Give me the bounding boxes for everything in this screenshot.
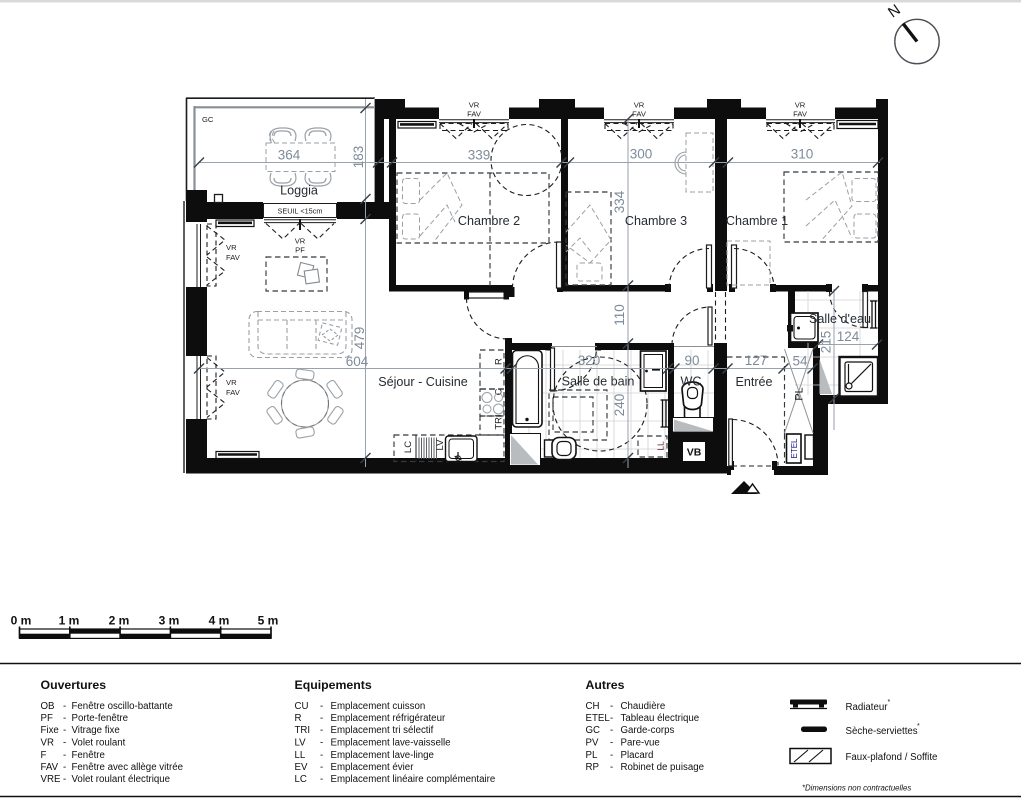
svg-text:-: - — [610, 750, 613, 761]
svg-text:-: - — [63, 725, 66, 736]
svg-text:479: 479 — [352, 327, 367, 350]
svg-text:Volet roulant électrique: Volet roulant électrique — [72, 774, 171, 785]
svg-text:R: R — [494, 358, 505, 365]
svg-text:300: 300 — [630, 147, 653, 162]
svg-text:R: R — [295, 713, 302, 724]
svg-text:FAV: FAV — [226, 388, 241, 397]
svg-text:VR: VR — [634, 101, 645, 110]
svg-text:CH: CH — [586, 701, 600, 712]
svg-text:OB: OB — [41, 701, 55, 712]
svg-text:Tableau électrique: Tableau électrique — [621, 713, 700, 724]
svg-text:Loggia: Loggia — [280, 184, 318, 198]
svg-text:ETEL: ETEL — [790, 438, 799, 459]
svg-text:-: - — [320, 713, 323, 724]
svg-text:Emplacement tri sélectif: Emplacement tri sélectif — [331, 725, 434, 736]
svg-text:Fenêtre oscillo-battante: Fenêtre oscillo-battante — [72, 701, 173, 712]
svg-text:Placard: Placard — [621, 750, 654, 761]
svg-text:Equipements: Equipements — [295, 678, 372, 692]
svg-text:-: - — [63, 762, 66, 773]
svg-text:VR: VR — [226, 378, 237, 387]
svg-text:LC: LC — [403, 441, 414, 453]
svg-text:0 m: 0 m — [11, 614, 32, 628]
svg-text:-: - — [610, 701, 613, 712]
svg-text:VRE: VRE — [41, 774, 61, 785]
svg-text:PL: PL — [586, 750, 598, 761]
svg-text:-: - — [610, 713, 613, 724]
svg-text:Emplacement lave-vaisselle: Emplacement lave-vaisselle — [331, 738, 451, 749]
svg-text:Faux-plafond / Soffite: Faux-plafond / Soffite — [846, 752, 938, 763]
svg-text:CU: CU — [295, 701, 309, 712]
svg-text:PV: PV — [586, 738, 599, 749]
svg-text:110: 110 — [612, 304, 627, 326]
svg-text:240: 240 — [612, 394, 627, 417]
svg-text:PF: PF — [41, 713, 53, 724]
svg-text:-: - — [320, 774, 323, 785]
svg-text:-: - — [63, 774, 66, 785]
svg-text:FAV: FAV — [41, 762, 59, 773]
svg-text:3 m: 3 m — [159, 614, 180, 628]
svg-text:VR: VR — [41, 738, 54, 749]
svg-text:Radiateur: Radiateur — [846, 702, 889, 713]
svg-text:VB: VB — [687, 447, 702, 459]
svg-text:Entrée: Entrée — [735, 375, 772, 389]
svg-text:VR: VR — [226, 243, 237, 252]
svg-text:604: 604 — [346, 354, 369, 369]
svg-text:LL: LL — [295, 750, 306, 761]
svg-text:Salle d'eau: Salle d'eau — [809, 312, 871, 326]
svg-text:-: - — [63, 750, 66, 761]
svg-text:F: F — [41, 750, 47, 761]
svg-text:LL: LL — [656, 441, 666, 451]
svg-text:FAV: FAV — [793, 110, 808, 119]
svg-text:VR: VR — [469, 101, 480, 110]
svg-text:Fenêtre avec allège vitrée: Fenêtre avec allège vitrée — [72, 762, 183, 773]
svg-text:Ouvertures: Ouvertures — [41, 678, 107, 692]
svg-text:-: - — [610, 725, 613, 736]
svg-text:VR: VR — [295, 237, 306, 246]
svg-text:310: 310 — [791, 147, 814, 162]
svg-text:364: 364 — [278, 148, 301, 163]
svg-text:90: 90 — [684, 353, 699, 368]
svg-text:Vitrage fixe: Vitrage fixe — [72, 725, 120, 736]
svg-text:VR: VR — [795, 101, 806, 110]
svg-text:Emplacement lave-linge: Emplacement lave-linge — [331, 750, 434, 761]
svg-text:Emplacement réfrigérateur: Emplacement réfrigérateur — [331, 713, 446, 724]
svg-text:*Dimensions non contractuelles: *Dimensions non contractuelles — [802, 784, 911, 793]
svg-text:RP: RP — [586, 762, 599, 773]
svg-text:124: 124 — [837, 329, 860, 344]
svg-text:Sèche-serviettes: Sèche-serviettes — [846, 726, 918, 737]
svg-text:Porte-fenêtre: Porte-fenêtre — [72, 713, 129, 724]
svg-text:PF: PF — [295, 246, 305, 255]
svg-text:-: - — [610, 738, 613, 749]
svg-text:EV: EV — [295, 762, 308, 773]
svg-text:Salle de bain: Salle de bain — [562, 375, 635, 389]
svg-text:C: C — [494, 388, 505, 395]
svg-text:*: * — [888, 699, 891, 706]
svg-text:-: - — [63, 713, 66, 724]
svg-text:-: - — [320, 725, 323, 736]
svg-text:Autres: Autres — [586, 678, 625, 692]
svg-text:ETEL: ETEL — [586, 713, 611, 724]
svg-text:Emplacement évier: Emplacement évier — [331, 762, 415, 773]
svg-text:Fixe: Fixe — [41, 725, 59, 736]
svg-text:183: 183 — [351, 146, 366, 169]
svg-text:-: - — [320, 762, 323, 773]
svg-text:*: * — [917, 723, 920, 730]
svg-text:54: 54 — [792, 354, 808, 369]
svg-text:PL: PL — [794, 387, 806, 400]
svg-text:215: 215 — [819, 331, 834, 354]
svg-text:-: - — [320, 750, 323, 761]
svg-text:LC: LC — [295, 774, 307, 785]
svg-text:-: - — [320, 701, 323, 712]
svg-text:4 m: 4 m — [209, 614, 230, 628]
svg-text:339: 339 — [468, 148, 491, 163]
svg-text:TRI: TRI — [494, 414, 505, 429]
svg-text:Chambre 3: Chambre 3 — [625, 214, 687, 228]
svg-text:Emplacement cuisson: Emplacement cuisson — [331, 701, 426, 712]
svg-text:GC: GC — [586, 725, 601, 736]
svg-text:Garde-corps: Garde-corps — [621, 725, 675, 736]
svg-text:LV: LV — [435, 439, 446, 451]
svg-text:FAV: FAV — [226, 253, 241, 262]
svg-text:2 m: 2 m — [109, 614, 130, 628]
svg-text:FAV: FAV — [632, 110, 647, 119]
svg-text:Chaudière: Chaudière — [621, 701, 666, 712]
svg-text:-: - — [320, 738, 323, 749]
svg-text:127: 127 — [745, 353, 768, 368]
svg-text:Pare-vue: Pare-vue — [621, 738, 660, 749]
svg-text:320: 320 — [578, 353, 601, 368]
svg-text:-: - — [610, 762, 613, 773]
svg-text:Robinet de puisage: Robinet de puisage — [621, 762, 704, 773]
svg-text:Fenêtre: Fenêtre — [72, 750, 105, 761]
svg-text:334: 334 — [612, 190, 627, 213]
svg-text:Emplacement linéaire complémen: Emplacement linéaire complémentaire — [331, 774, 496, 785]
svg-text:-: - — [63, 738, 66, 749]
svg-text:TRI: TRI — [295, 725, 311, 736]
svg-text:GC: GC — [202, 115, 214, 124]
svg-text:WC: WC — [681, 375, 702, 389]
svg-text:-: - — [63, 701, 66, 712]
svg-text:Chambre 1: Chambre 1 — [726, 214, 788, 228]
svg-text:Chambre 2: Chambre 2 — [458, 214, 520, 228]
svg-text:Volet roulant: Volet roulant — [72, 738, 126, 749]
svg-text:FAV: FAV — [467, 110, 482, 119]
svg-text:5 m: 5 m — [258, 614, 279, 628]
svg-text:SEUIL <15cm: SEUIL <15cm — [278, 207, 323, 216]
svg-text:LV: LV — [295, 738, 307, 749]
svg-text:1 m: 1 m — [59, 614, 80, 628]
svg-text:Séjour - Cuisine: Séjour - Cuisine — [378, 375, 468, 389]
